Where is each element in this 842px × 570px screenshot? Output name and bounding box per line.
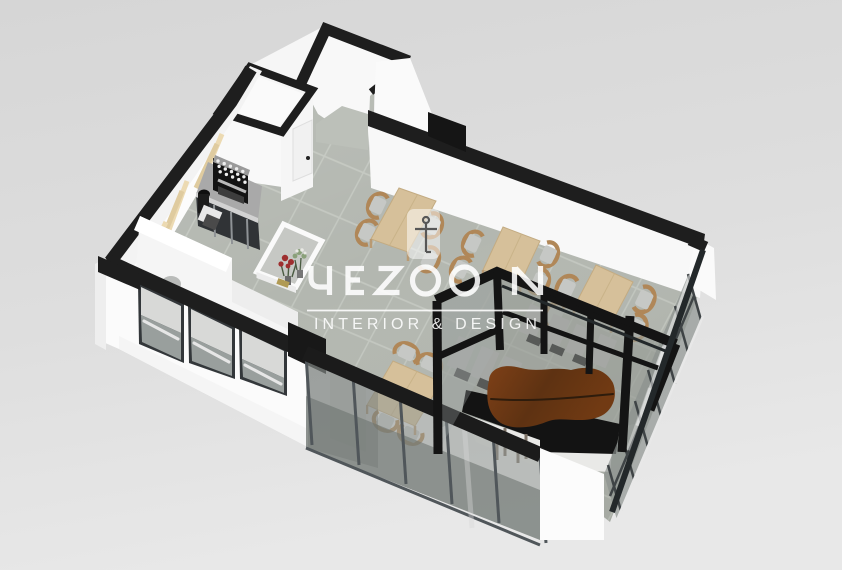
svg-text:INTERIOR & DESIGN: INTERIOR & DESIGN <box>314 316 541 333</box>
